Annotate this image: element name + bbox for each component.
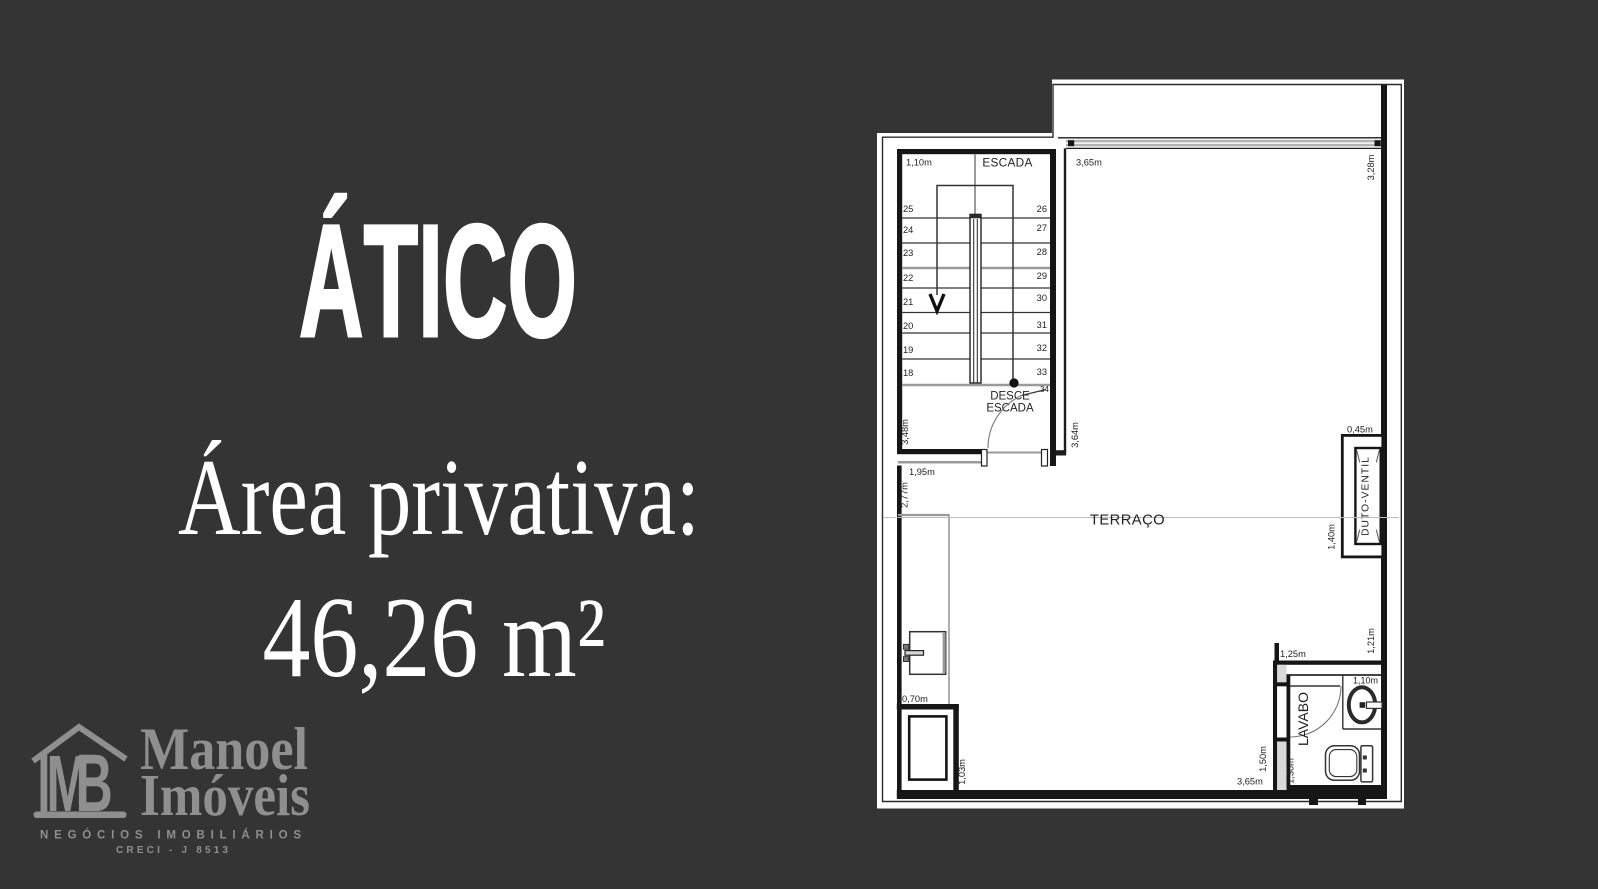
svg-text:46,26 m²: 46,26 m² xyxy=(263,574,606,701)
svg-text:22: 22 xyxy=(903,273,913,283)
svg-text:1,10m: 1,10m xyxy=(1353,676,1378,686)
svg-text:3,65m: 3,65m xyxy=(1237,777,1263,787)
svg-text:0,45m: 0,45m xyxy=(1347,425,1373,435)
svg-text:2,77m: 2,77m xyxy=(900,482,910,508)
svg-text:27: 27 xyxy=(1037,223,1047,233)
svg-text:1,95m: 1,95m xyxy=(909,467,935,477)
svg-text:Imóveis: Imóveis xyxy=(140,762,310,828)
svg-text:1,03m: 1,03m xyxy=(957,759,967,785)
svg-text:1,40m: 1,40m xyxy=(1327,524,1337,550)
svg-text:33: 33 xyxy=(1037,367,1047,377)
svg-text:26: 26 xyxy=(1037,204,1047,214)
svg-text:32: 32 xyxy=(1037,343,1047,353)
svg-text:3,48m: 3,48m xyxy=(900,419,910,445)
svg-text:0,70m: 0,70m xyxy=(902,694,928,704)
svg-text:19: 19 xyxy=(903,345,913,355)
svg-text:24: 24 xyxy=(903,225,913,235)
svg-text:23: 23 xyxy=(903,248,913,258)
svg-text:TERRAÇO: TERRAÇO xyxy=(1090,513,1165,529)
svg-text:Área privativa:: Área privativa: xyxy=(178,437,700,558)
svg-text:21: 21 xyxy=(903,297,913,307)
svg-text:LAVABO: LAVABO xyxy=(1295,692,1311,746)
svg-text:30: 30 xyxy=(1037,293,1047,303)
svg-text:28: 28 xyxy=(1037,247,1047,257)
svg-text:18: 18 xyxy=(903,368,913,378)
svg-text:1,21m: 1,21m xyxy=(1366,628,1376,654)
svg-text:1,50m: 1,50m xyxy=(1258,746,1268,772)
svg-text:3,28m: 3,28m xyxy=(1366,154,1376,180)
svg-text:20: 20 xyxy=(903,321,913,331)
svg-text:B: B xyxy=(76,737,113,829)
svg-text:1,10m: 1,10m xyxy=(906,158,932,168)
svg-text:CRECI - J 8513: CRECI - J 8513 xyxy=(116,845,228,856)
svg-text:ESCADA: ESCADA xyxy=(986,403,1034,415)
svg-text:31: 31 xyxy=(1037,320,1047,330)
svg-text:3,65m: 3,65m xyxy=(1076,158,1102,168)
svg-text:3,64m: 3,64m xyxy=(1070,422,1080,448)
svg-text:25: 25 xyxy=(903,204,913,214)
svg-text:NEGÓCIOS IMOBILIÁRIOS: NEGÓCIOS IMOBILIÁRIOS xyxy=(40,829,301,842)
svg-text:ESCADA: ESCADA xyxy=(982,156,1032,170)
svg-text:ÁTICO: ÁTICO xyxy=(299,191,577,370)
svg-text:DESCE: DESCE xyxy=(990,391,1030,403)
svg-text:1,30m: 1,30m xyxy=(1286,758,1296,784)
svg-text:DUTO-VENTIL: DUTO-VENTIL xyxy=(1361,456,1372,536)
svg-text:29: 29 xyxy=(1037,271,1047,281)
svg-text:1,25m: 1,25m xyxy=(1280,649,1306,659)
